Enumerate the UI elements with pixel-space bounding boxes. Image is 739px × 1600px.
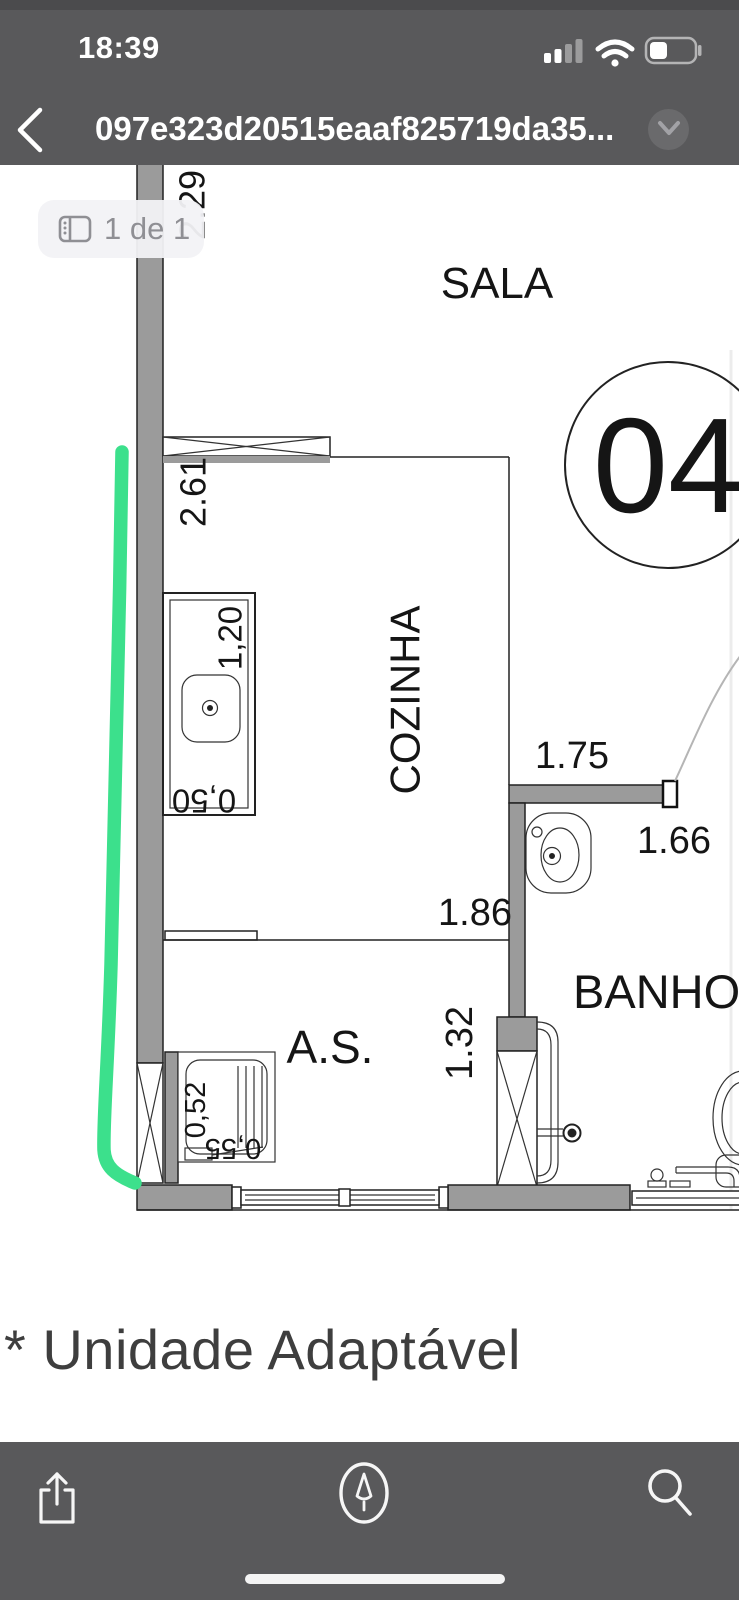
window-post — [232, 1187, 241, 1208]
dim-cozinha-left: 2.61 — [173, 457, 214, 527]
room-label-sala: SALA — [441, 259, 554, 308]
markup-button[interactable] — [338, 1460, 390, 1526]
chevron-left-icon — [20, 110, 40, 150]
document-title: 097e323d20515eaaf825719da35... — [95, 110, 635, 148]
dim-tanque-w: 0,52 — [180, 1082, 212, 1138]
room-label-cozinha: COZINHA — [382, 606, 429, 795]
dim-counter-depth: 0,50 — [172, 783, 236, 820]
banho-sink — [526, 813, 591, 893]
share-button[interactable] — [32, 1468, 82, 1528]
window-post — [439, 1187, 448, 1208]
battery-icon — [646, 38, 702, 63]
iphone-screen: { "status_bar": { "time": "18:39" }, "na… — [0, 0, 739, 1600]
pages-icon — [58, 215, 92, 243]
floor-plan-drawing: 04 SALA COZINHA A.S. BANHO 2.29 2.61 1,2… — [0, 165, 739, 1442]
search-icon — [650, 1471, 690, 1514]
markup-icon — [341, 1464, 387, 1522]
chevron-down-icon — [653, 119, 685, 141]
shower-head — [537, 1125, 581, 1142]
collapse-title-button[interactable] — [648, 109, 689, 150]
wall-banho-block — [497, 1017, 537, 1051]
status-icons — [530, 34, 710, 68]
wall-left — [137, 165, 163, 1063]
counter-return — [165, 931, 257, 940]
back-button[interactable] — [14, 107, 48, 153]
wifi-icon — [598, 42, 632, 67]
toilet — [713, 1071, 739, 1187]
tap — [651, 1169, 663, 1181]
top-chrome: 18:39 097e323d20515eaaf825719da35... — [0, 0, 739, 165]
window-banho — [497, 1051, 537, 1187]
plan-note: * Unidade Adaptável — [4, 1317, 521, 1382]
unit-number-circle: 04 — [565, 362, 739, 568]
home-indicator[interactable] — [245, 1574, 505, 1584]
dim-banho-top: 1.75 — [535, 735, 609, 777]
wall-banho-top — [509, 785, 665, 803]
top-shade — [0, 0, 739, 10]
door-jamb — [663, 781, 677, 807]
status-time: 18:39 — [78, 30, 160, 66]
door-swing-arc — [675, 655, 739, 781]
window-mullion — [339, 1189, 350, 1206]
dim-counter-length: 1,20 — [212, 606, 249, 670]
dim-as-right: 1.32 — [439, 1006, 481, 1080]
pdf-page[interactable]: 04 SALA COZINHA A.S. BANHO 2.29 2.61 1,2… — [0, 165, 739, 1442]
share-icon — [41, 1474, 73, 1522]
shower-enclosure — [537, 1022, 558, 1183]
room-label-as: A.S. — [287, 1021, 374, 1073]
dim-tanque-d: 0,55 — [205, 1132, 261, 1164]
search-button[interactable] — [644, 1466, 698, 1522]
window-servico — [137, 1063, 163, 1183]
wall-bottom — [137, 1185, 739, 1210]
cellular-signal-icon — [544, 39, 583, 63]
room-label-banho: BANHO — [573, 965, 739, 1018]
grab-bar — [648, 1167, 739, 1187]
dim-cozinha-bottom: 1.86 — [438, 892, 512, 934]
page-indicator-label: 1 de 1 — [104, 211, 190, 247]
green-annotation-stroke — [104, 452, 135, 1183]
pilaster — [165, 1052, 178, 1183]
dim-banho-right: 1.66 — [637, 820, 711, 862]
unit-number: 04 — [593, 390, 739, 541]
page-indicator[interactable]: 1 de 1 — [38, 200, 204, 258]
